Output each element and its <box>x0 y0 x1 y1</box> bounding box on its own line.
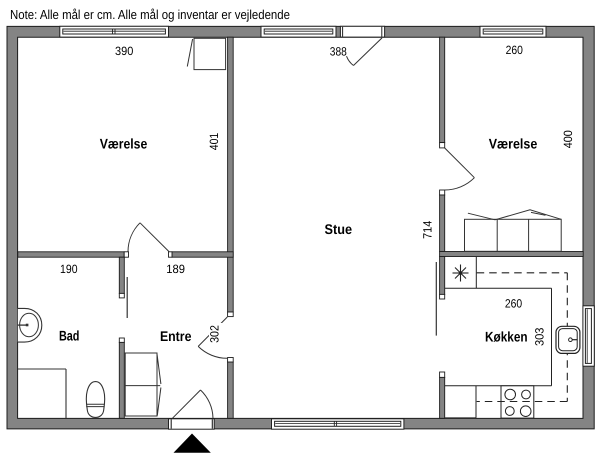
svg-text:260: 260 <box>505 297 523 311</box>
svg-text:Køkken: Køkken <box>485 328 528 344</box>
svg-text:302: 302 <box>208 325 222 343</box>
svg-text:400: 400 <box>561 130 575 148</box>
svg-text:Entre: Entre <box>160 328 192 344</box>
svg-text:303: 303 <box>533 327 547 346</box>
svg-text:Værelse: Værelse <box>100 135 148 151</box>
svg-text:190: 190 <box>60 262 78 276</box>
svg-text:Note: Alle mål er cm. Alle mål: Note: Alle mål er cm. Alle mål og invent… <box>10 7 290 22</box>
svg-text:189: 189 <box>166 262 185 276</box>
svg-text:390: 390 <box>115 44 134 58</box>
svg-text:Stue: Stue <box>325 221 353 237</box>
svg-text:388: 388 <box>330 45 347 59</box>
svg-text:260: 260 <box>506 43 524 57</box>
svg-text:714: 714 <box>421 220 435 239</box>
svg-text:401: 401 <box>207 132 221 150</box>
svg-text:Bad: Bad <box>59 327 80 343</box>
svg-text:Værelse: Værelse <box>489 136 538 152</box>
